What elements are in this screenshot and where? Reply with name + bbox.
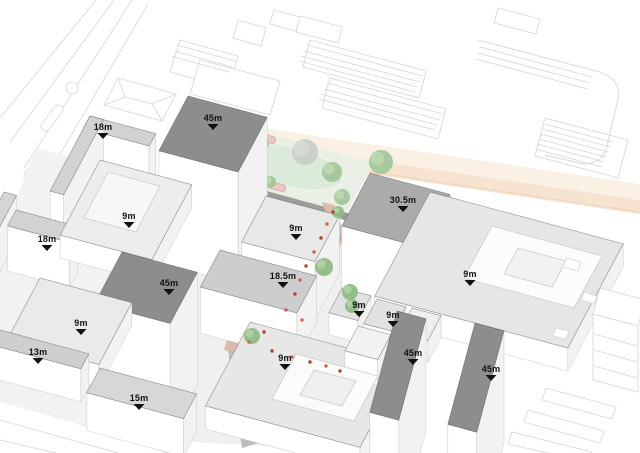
pedestrian-figure	[262, 330, 265, 333]
tree	[324, 164, 335, 175]
context-line	[0, 0, 96, 118]
context-building-outline	[233, 20, 266, 46]
height-label: 18.5m	[270, 271, 297, 281]
site-axonometric-diagram: 18m18m45m9m9m30.5m9m18.5m9m9m45m9m13m15m…	[0, 0, 640, 453]
height-label: 9m	[122, 211, 135, 221]
pedestrian-figure	[324, 364, 327, 367]
pedestrian-figure	[338, 369, 341, 372]
building-slab-45m-b	[448, 323, 504, 453]
context-building-outline	[593, 314, 638, 392]
height-label: 15m	[130, 393, 149, 403]
context-line	[480, 47, 592, 77]
height-label: 45m	[482, 364, 501, 374]
pedestrian-figure	[308, 360, 311, 363]
pedestrian-figure	[325, 222, 328, 225]
height-label: 45m	[404, 348, 423, 358]
pedestrian-figure	[304, 264, 307, 267]
context-line	[478, 53, 590, 83]
pedestrian-figure	[247, 340, 250, 343]
pedestrian-figure	[312, 250, 315, 253]
street-tree	[317, 260, 326, 269]
height-label: 45m	[204, 113, 223, 123]
pedestrian-figure	[298, 278, 301, 281]
context-building-outline	[270, 10, 300, 31]
tree-gray	[293, 140, 309, 156]
height-label: 18m	[38, 234, 57, 244]
height-label: 18m	[94, 122, 113, 132]
height-label: 9m	[386, 310, 399, 320]
height-label: 30.5m	[390, 195, 417, 205]
context-building-outline	[104, 78, 176, 121]
pedestrian-figure	[331, 210, 334, 213]
height-label: 9m	[278, 353, 291, 363]
tree	[371, 152, 384, 165]
traffic-island	[39, 103, 65, 132]
pedestrian-figure	[319, 236, 322, 239]
street-tree	[246, 330, 254, 338]
context-building-outline	[542, 388, 616, 419]
pedestrian-figure	[293, 292, 296, 295]
context-building-outline	[494, 8, 540, 34]
height-label: 9m	[74, 318, 87, 328]
traffic-island	[66, 82, 78, 94]
context-line	[476, 59, 588, 89]
context-building-outline	[535, 118, 628, 178]
height-label: 9m	[352, 300, 365, 310]
pedestrian-figure	[300, 318, 303, 321]
context-line	[0, 440, 56, 453]
tree	[335, 190, 344, 199]
height-label: 13m	[29, 347, 48, 357]
height-label: 9m	[463, 269, 476, 279]
street-tree	[344, 286, 352, 294]
height-label: 45m	[160, 278, 179, 288]
pedestrian-figure	[270, 349, 273, 352]
height-label: 9m	[289, 223, 302, 233]
diagram-canvas: 18m18m45m9m9m30.5m9m18.5m9m9m45m9m13m15m…	[0, 0, 640, 453]
context-building-outline	[296, 16, 342, 43]
pedestrian-figure	[284, 308, 287, 311]
